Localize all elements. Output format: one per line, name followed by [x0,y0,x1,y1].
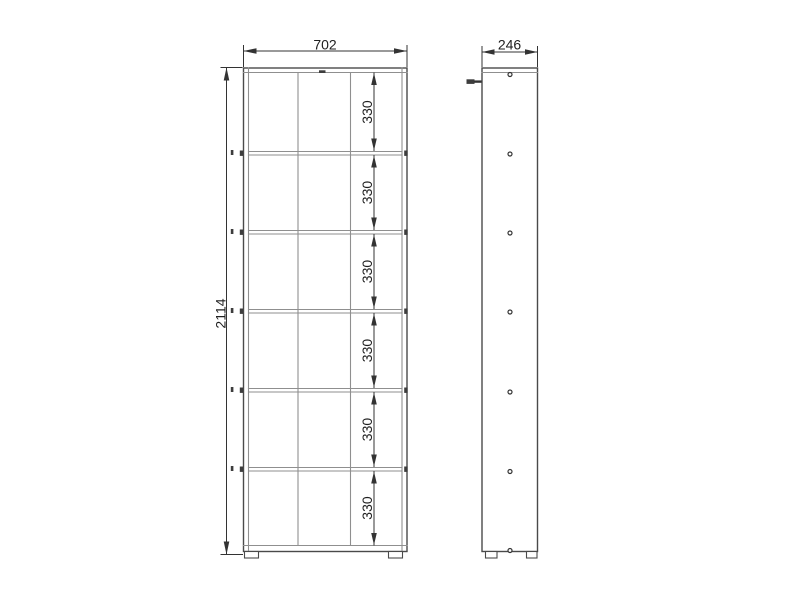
shelf-pin-mark [231,308,234,313]
shelf-pin-hole [508,231,512,235]
compartment-height-label: 330 [359,418,375,442]
side-depth-dimension: 246 [482,37,538,67]
dimension-arrow-right-icon [394,48,407,54]
shelf-pin-mark [231,229,234,234]
dimension-arrow-up-icon [371,235,377,247]
compartment-dimension-4: 330 [359,314,377,388]
compartment-dimension-5: 330 [359,393,377,467]
shelf-pin-mark [231,466,234,471]
shelf-pin-hole [508,73,512,77]
shelf-lines [249,152,403,472]
shelf-pin-hole [508,152,512,156]
dimension-arrow-up-icon [371,472,377,484]
compartment-height-label: 330 [359,181,375,205]
shelf-edge-mark [240,388,243,393]
dimension-arrow-down-icon [371,218,377,230]
dimension-arrow-up-icon [224,68,230,81]
front-height-dimension: 2114 [213,68,243,555]
dimension-arrow-down-icon [224,542,230,555]
dimension-arrow-down-icon [371,139,377,151]
shelf-pin-hole [508,470,512,474]
dimension-arrow-left-icon [482,49,495,55]
shelf-edge-mark [404,230,407,235]
shelf-pin-mark [231,150,234,155]
compartment-dimension-2: 330 [359,156,377,230]
top-panel-fitting-mark [319,70,326,73]
shelf-edge-marks [231,150,408,472]
shelf-edge-mark [240,230,243,235]
shelf-pin-hole [508,390,512,394]
shelf-edge-mark [404,151,407,156]
front-foot-left [245,552,259,559]
screw-head [467,79,475,84]
shelf-pin-mark [231,387,234,392]
side-depth-label: 246 [498,37,522,53]
dimension-arrow-up-icon [371,393,377,405]
shelf-pin-hole [508,310,512,314]
front-foot-right [389,552,403,559]
compartment-dimension-6: 330 [359,472,377,546]
dimension-arrow-down-icon [371,376,377,388]
side-foot-right [527,552,538,559]
furniture-technical-drawing: 702 2114 330 330 330 330 330 [0,0,800,600]
compartment-height-label: 330 [359,339,375,363]
compartment-dimension-3: 330 [359,235,377,309]
dimension-arrow-up-icon [371,156,377,168]
compartment-dimension-1: 330 [359,73,377,151]
dimension-arrow-up-icon [371,314,377,326]
shelf-edge-mark [404,467,407,472]
side-view [467,68,538,558]
shelf-edge-mark [404,388,407,393]
compartment-height-label: 330 [359,100,375,124]
front-view [231,68,408,558]
dimension-arrow-up-icon [371,73,377,85]
shelf-edge-mark [240,467,243,472]
dimension-arrow-down-icon [371,297,377,309]
shelf-pin-hole [508,549,512,553]
front-width-dimension: 702 [244,37,408,67]
shelf-edge-mark [404,309,407,314]
front-height-label: 2114 [213,298,229,328]
shelf-pin-holes [508,73,512,553]
screw-fitting-icon [467,79,482,84]
dimension-arrow-left-icon [244,48,257,54]
compartment-height-label: 330 [359,260,375,284]
dimension-arrow-right-icon [525,49,538,55]
shelf-edge-mark [240,309,243,314]
dimension-arrow-down-icon [371,533,377,545]
shelf-edge-mark [240,151,243,156]
side-foot-left [486,552,498,559]
dimension-arrow-down-icon [371,455,377,467]
front-width-label: 702 [313,37,337,53]
compartment-height-label: 330 [359,496,375,520]
